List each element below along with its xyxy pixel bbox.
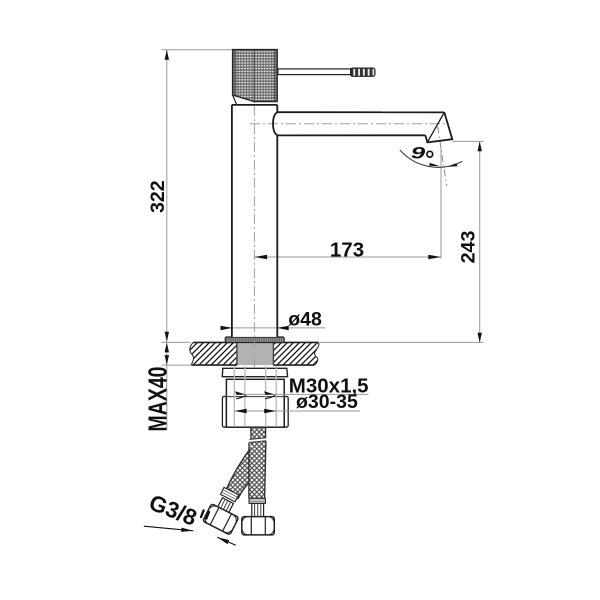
svg-text:9: 9 [411, 143, 426, 162]
svg-text:ø48: ø48 [288, 309, 322, 331]
svg-text:ø30-35: ø30-35 [296, 391, 358, 413]
svg-text:MAX40: MAX40 [143, 366, 172, 431]
svg-text:243: 243 [457, 231, 479, 264]
svg-text:322: 322 [147, 180, 169, 213]
svg-text:173: 173 [330, 239, 364, 262]
